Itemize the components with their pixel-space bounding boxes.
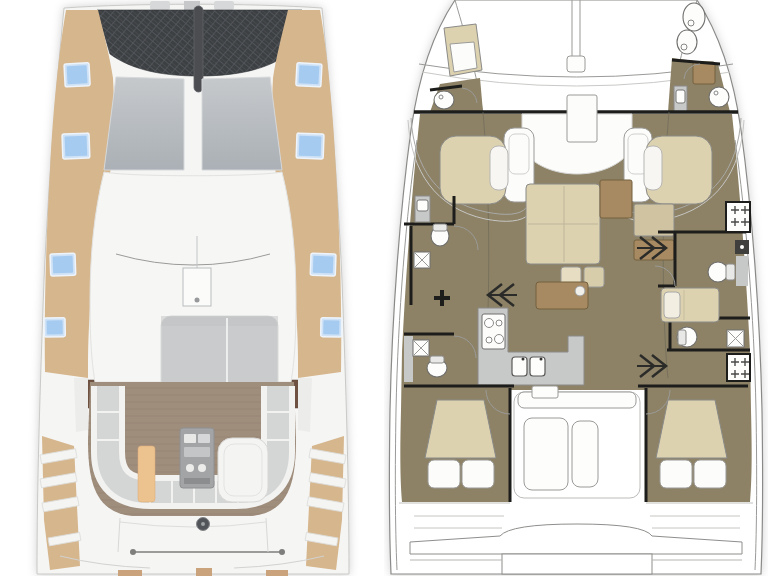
interior-floor-plan [384, 0, 768, 576]
exterior-deck-plan [0, 0, 384, 576]
bowsprit-roller [567, 56, 585, 72]
mid-cabin-bed [661, 288, 719, 322]
pillow [428, 460, 460, 488]
pillow [694, 460, 726, 488]
toilet-icon [708, 262, 728, 282]
catamaran-layout-image [0, 0, 768, 576]
aft-cabin-starboard [656, 400, 727, 488]
shower-icon [727, 330, 744, 347]
toilet-icon [709, 87, 729, 107]
cabinet [693, 62, 715, 84]
anchor-windlass [150, 1, 234, 11]
aft-cabin-port [425, 400, 496, 488]
pillow [664, 292, 680, 318]
forward-cockpit-table [567, 95, 597, 142]
aft-cockpit-table [524, 418, 568, 490]
forward-lounge-seat [440, 136, 508, 204]
cockpit-table [218, 438, 268, 502]
aft-cockpit-table [572, 421, 598, 487]
forward-lounge-seat [644, 136, 712, 204]
coffee-table [536, 282, 588, 309]
sink-icon [677, 30, 697, 54]
saloon-sofa [526, 184, 600, 264]
accent-cushion [138, 446, 155, 502]
shower-icon [413, 340, 429, 356]
bed [656, 400, 727, 458]
dining-table [600, 180, 632, 218]
stove-icon [482, 314, 505, 349]
shower-icon [414, 252, 430, 268]
pillow [462, 460, 494, 488]
pillow [660, 460, 692, 488]
wet-bar [180, 428, 214, 488]
mast-step [183, 268, 211, 306]
toilet-icon [434, 91, 454, 109]
bed [425, 400, 496, 458]
toilet-icon [683, 3, 705, 31]
